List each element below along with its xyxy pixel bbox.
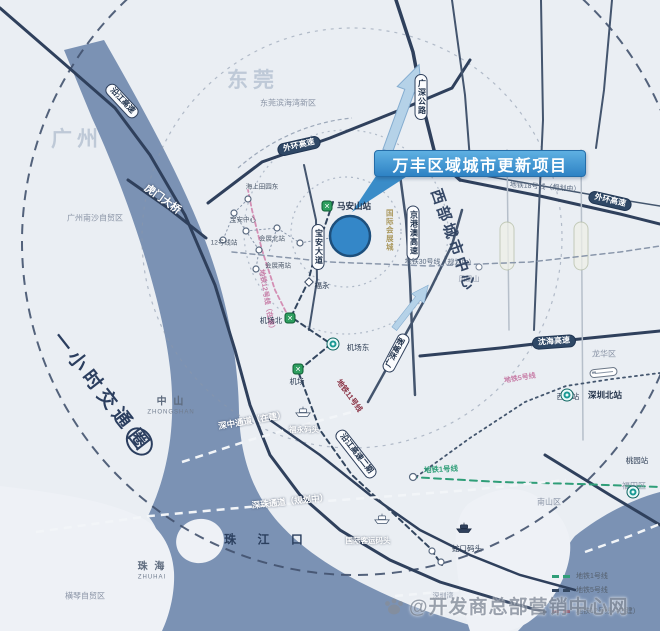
- label-baoan-avenue: 宝安大道: [312, 224, 325, 270]
- baidu-paw-icon: [382, 594, 406, 618]
- label-hengqin-ftz: 横琴自贸区: [65, 593, 105, 602]
- label-humen-bridge: 虎门大桥: [142, 183, 183, 217]
- legend-line1-swatch: [552, 575, 572, 578]
- label-yanjiang-expressway: 沿江高速: [103, 81, 141, 121]
- watermark: @开发商总部营销中心网: [382, 592, 629, 619]
- label-outer-ring-expressway-east: 外环高速: [587, 190, 633, 213]
- label-fuyong-station: 福永: [315, 282, 330, 290]
- project-banner-title: 万丰区域城市更新项目: [392, 152, 567, 176]
- label-guangshen-expressway: 广深高速: [380, 331, 411, 374]
- fuyong-station-icon: [304, 277, 314, 287]
- label-dg-binhaiwan-new-area: 东莞滨海湾新区: [260, 100, 316, 109]
- label-taoyuan-station: 桃园站: [626, 457, 649, 465]
- airport-metro-icon: ✕: [293, 364, 304, 375]
- legend-line1-label: 地铁1号线: [576, 571, 608, 581]
- label-shenzhen-north-station: 深圳北站: [588, 391, 622, 401]
- label-guangzhou: 广州: [51, 128, 103, 152]
- airport-north-metro-icon: ✕: [285, 313, 296, 324]
- label-shenzhong-corridor: 深中通道（在建）: [218, 410, 287, 431]
- shenzhen-north-train-icon: [589, 366, 619, 385]
- label-pearl-river-estuary: 珠 江 口: [224, 533, 312, 546]
- airport-east-metro-icon: [328, 339, 339, 350]
- label-metro-line18: 地铁18号线（规划中）: [509, 182, 580, 195]
- project-location-map: 沿江高速广深公路京港澳高速宝安大道广深高速沿江高速二期外环高速外环高速沈海高速虎…: [0, 0, 660, 631]
- label-dongguan: 东莞: [227, 69, 279, 93]
- watermark-text: @开发商总部营销中心网: [409, 592, 629, 619]
- label-huizhan-north-station: 会展北站: [259, 235, 285, 242]
- label-zhuhai-en: ZHUHAI: [138, 575, 166, 582]
- label-zhongshan: 中 山: [157, 396, 186, 407]
- label-airport-station: 机场: [290, 378, 305, 386]
- label-gz-nansha-ftz: 广州南沙自贸区: [67, 215, 123, 224]
- label-metro-line11: 地铁11号线: [334, 378, 363, 414]
- label-intl-ferry-terminal: 国际客运码头: [346, 537, 391, 545]
- fuyong-ferry-icon: [294, 405, 312, 423]
- maanshan-metro-icon: ✕: [322, 201, 333, 212]
- label-line12-station: 12号线站: [211, 239, 238, 246]
- map-labels-layer: 沿江高速广深公路京港澳高速宝安大道广深高速沿江高速二期外环高速外环高速沈海高速虎…: [0, 0, 660, 631]
- label-baoan-center: 宝安中心: [230, 216, 256, 223]
- label-shenhai-expressway: 沈海高速: [532, 334, 577, 350]
- legend-row-line1: 地铁1号线: [552, 571, 640, 581]
- label-shekou-ferry: 蛇口码头: [452, 545, 482, 553]
- label-yanjiang-expressway-phase2: 沿江高速二期: [333, 427, 379, 481]
- label-haishang-tianyuan-east: 海上田园东: [246, 183, 279, 190]
- label-west-city-center: 西部城市中心: [426, 187, 477, 295]
- label-intl-convention-city: 国际会展城: [385, 209, 393, 252]
- label-huizhan-south-station: 会展南站: [265, 262, 291, 269]
- label-airport-north-station: 机场北: [260, 317, 283, 325]
- label-nanshan-district: 南山区: [537, 499, 561, 508]
- label-airport-east-station: 机场东: [347, 344, 370, 352]
- label-shenzhu-corridor: 深珠通道（规划中）: [251, 493, 328, 510]
- xili-metro-icon: [562, 390, 573, 401]
- project-banner: 万丰区域城市更新项目: [374, 150, 586, 177]
- label-fuyong-ferry: 福永码头: [289, 426, 319, 434]
- label-jinggangao-expressway: 京港澳高速: [407, 206, 420, 261]
- taoyuan-metro-icon: [628, 487, 639, 498]
- label-outer-ring-expressway-west: 外环高速: [276, 135, 322, 158]
- fenghuang-mountain-icon: [476, 264, 483, 271]
- shekou-ferry-icon: [455, 521, 473, 539]
- label-zhongshan-en: ZHONGSHAN: [147, 410, 194, 417]
- label-longhua-district: 龙华区: [592, 351, 616, 360]
- label-zhuhai: 珠 海: [138, 561, 167, 572]
- label-guangshen-highway: 广深公路: [415, 74, 428, 120]
- label-metro-line5: 地铁5号线: [504, 373, 537, 386]
- label-maanshan-station: 马安山站: [337, 202, 371, 212]
- intl-ferry-icon: [373, 512, 391, 530]
- label-metro-line1: 地铁1号线: [424, 465, 459, 475]
